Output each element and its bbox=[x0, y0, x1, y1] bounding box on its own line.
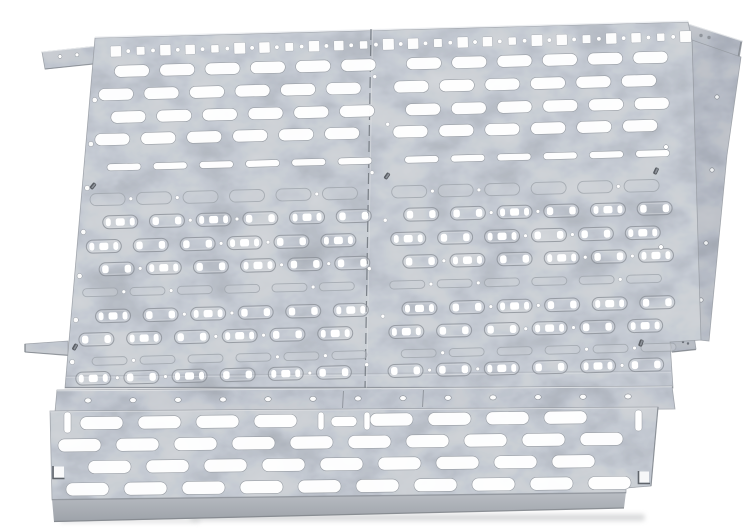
top-left-tab bbox=[42, 46, 100, 69]
open-slot bbox=[245, 159, 279, 167]
knockout-slot bbox=[146, 261, 181, 275]
square-hole bbox=[606, 33, 617, 44]
pilot-hole bbox=[524, 327, 528, 331]
rail-slot bbox=[66, 482, 109, 496]
rail-slot bbox=[530, 477, 573, 491]
pilot-hole bbox=[583, 255, 587, 259]
square-hole bbox=[657, 33, 665, 41]
rail-slot bbox=[138, 416, 181, 430]
open-slot bbox=[497, 101, 532, 114]
open-slot bbox=[439, 124, 474, 137]
flush-knockout bbox=[449, 348, 484, 357]
rail-slot bbox=[254, 414, 297, 428]
round-hole bbox=[498, 39, 502, 43]
pilot-hole bbox=[489, 305, 493, 309]
open-slot bbox=[141, 132, 176, 145]
round-hole bbox=[374, 42, 378, 46]
pilot-hole bbox=[315, 192, 319, 196]
rail-vertical-slot bbox=[364, 412, 370, 430]
edge-hole bbox=[664, 145, 669, 150]
flush-knockout bbox=[183, 191, 218, 204]
open-slot bbox=[95, 133, 130, 146]
knockout-slot bbox=[638, 249, 673, 263]
round-hole bbox=[365, 363, 369, 367]
square-hole bbox=[234, 42, 246, 54]
round-hole bbox=[349, 43, 353, 47]
open-slot bbox=[531, 122, 566, 135]
open-slot bbox=[160, 63, 195, 76]
rail-slot bbox=[356, 479, 399, 493]
rail-slot bbox=[290, 436, 333, 450]
open-slot bbox=[406, 57, 441, 70]
rail-slot bbox=[378, 457, 421, 471]
knockout-slot bbox=[222, 329, 257, 343]
square-hole bbox=[259, 42, 270, 53]
round-hole bbox=[423, 41, 427, 45]
flush-knockout bbox=[229, 189, 264, 202]
pilot-hole bbox=[431, 189, 435, 193]
flush-knockout bbox=[284, 352, 319, 361]
pilot-hole bbox=[620, 363, 624, 367]
open-slot bbox=[394, 80, 429, 93]
strip-hole bbox=[625, 394, 632, 399]
flush-knockout bbox=[225, 284, 260, 293]
rail-slot bbox=[348, 435, 391, 449]
open-slot bbox=[636, 150, 670, 158]
rail-slot bbox=[320, 457, 363, 471]
edge-hole bbox=[92, 97, 97, 102]
square-hole bbox=[185, 44, 195, 54]
rail-slot bbox=[240, 480, 283, 494]
pilot-hole bbox=[489, 211, 493, 215]
rail-slot bbox=[588, 476, 631, 490]
edge-hole bbox=[659, 245, 664, 250]
flush-knockout bbox=[579, 276, 614, 285]
pilot-hole bbox=[571, 233, 575, 237]
pilot-hole bbox=[327, 262, 331, 266]
round-hole bbox=[370, 171, 374, 175]
knockout-slot bbox=[172, 369, 207, 383]
rail-slot bbox=[544, 411, 587, 425]
flush-knockout bbox=[136, 192, 171, 205]
square-hole bbox=[382, 38, 394, 50]
flush-knockout bbox=[236, 353, 271, 362]
strip-hole bbox=[220, 397, 227, 402]
knockout-slot bbox=[497, 299, 532, 313]
rail-slot bbox=[146, 459, 189, 473]
open-slot bbox=[189, 86, 224, 99]
strip-hole bbox=[580, 394, 587, 399]
flange-hole bbox=[715, 95, 719, 99]
pilot-hole bbox=[442, 259, 446, 263]
rail-slot bbox=[196, 415, 239, 429]
knockout-slot bbox=[391, 232, 426, 246]
open-slot bbox=[497, 55, 532, 68]
open-slot bbox=[497, 153, 531, 161]
mounting-plate-image bbox=[0, 0, 750, 531]
edge-hole bbox=[70, 359, 75, 364]
pilot-hole bbox=[429, 282, 433, 286]
rail-slot bbox=[58, 439, 101, 453]
flush-knockout bbox=[392, 185, 427, 198]
pilot-hole bbox=[182, 312, 186, 316]
square-hole bbox=[308, 41, 319, 52]
open-slot bbox=[235, 84, 270, 97]
rail-slot bbox=[204, 459, 247, 473]
open-slot bbox=[576, 76, 611, 89]
pilot-hole bbox=[524, 234, 528, 238]
open-slot bbox=[326, 82, 361, 95]
flush-knockout bbox=[484, 278, 519, 287]
open-slot bbox=[294, 106, 329, 119]
rail-slot bbox=[88, 460, 131, 474]
round-hole bbox=[399, 42, 403, 46]
strip-hole bbox=[175, 397, 182, 402]
flush-knockout bbox=[322, 187, 357, 200]
open-slot bbox=[543, 152, 577, 160]
flush-knockout bbox=[92, 357, 127, 366]
flush-knockout bbox=[497, 347, 532, 356]
pilot-hole bbox=[164, 375, 168, 379]
strip-hole bbox=[355, 396, 362, 401]
pilot-hole bbox=[633, 346, 637, 350]
pilot-hole bbox=[129, 197, 133, 201]
rail-slot bbox=[232, 436, 275, 450]
round-hole bbox=[250, 46, 254, 50]
flush-knockout bbox=[545, 345, 580, 354]
round-hole bbox=[299, 44, 303, 48]
round-hole bbox=[621, 36, 625, 40]
knockout-slot bbox=[580, 359, 615, 373]
round-hole bbox=[381, 314, 385, 318]
square-hole bbox=[160, 44, 171, 55]
edge-hole bbox=[77, 273, 82, 278]
pilot-hole bbox=[441, 351, 445, 355]
round-hole bbox=[275, 45, 279, 49]
square-hole bbox=[631, 33, 641, 43]
flush-knockout bbox=[130, 287, 165, 296]
knockout-slot bbox=[126, 331, 161, 345]
open-slot bbox=[341, 59, 376, 72]
square-hole bbox=[359, 41, 367, 49]
round-hole bbox=[176, 48, 180, 52]
strip-hole bbox=[130, 398, 137, 403]
edge-hole bbox=[88, 141, 93, 146]
round-hole bbox=[367, 267, 371, 271]
flush-knockout bbox=[90, 193, 125, 206]
rail-slot bbox=[182, 481, 225, 495]
pilot-hole bbox=[308, 371, 312, 375]
round-hole bbox=[383, 218, 387, 222]
knockout-slot bbox=[450, 253, 485, 267]
round-hole bbox=[646, 35, 650, 39]
flush-knockout bbox=[276, 188, 311, 201]
pilot-hole bbox=[230, 311, 234, 315]
flush-knockout bbox=[531, 182, 566, 195]
round-hole bbox=[473, 40, 477, 44]
pilot-hole bbox=[115, 376, 119, 380]
pilot-hole bbox=[169, 289, 173, 293]
knockout-slot bbox=[544, 251, 579, 265]
rail-slot bbox=[472, 478, 515, 492]
open-slot bbox=[278, 128, 313, 141]
open-slot bbox=[187, 131, 222, 144]
rail-vertical-slot bbox=[635, 410, 642, 431]
round-hole bbox=[225, 46, 229, 50]
flush-knockout bbox=[624, 179, 659, 192]
open-slot bbox=[405, 155, 439, 163]
strip-hole bbox=[400, 396, 407, 401]
open-slot bbox=[634, 97, 669, 110]
rail-slot bbox=[80, 416, 123, 430]
square-hole bbox=[285, 43, 294, 52]
pilot-hole bbox=[132, 358, 136, 362]
pilot-hole bbox=[276, 355, 280, 359]
knockout-slot bbox=[318, 326, 353, 340]
knockout-slot bbox=[484, 361, 519, 375]
round-hole bbox=[126, 49, 130, 53]
rail-slot bbox=[298, 480, 341, 494]
strip-hole bbox=[310, 396, 317, 401]
rail-slot bbox=[428, 412, 471, 426]
strip-hole bbox=[265, 397, 272, 402]
round-hole bbox=[324, 44, 328, 48]
pilot-hole bbox=[476, 367, 480, 371]
open-slot bbox=[589, 151, 623, 159]
rail-vertical-slot bbox=[64, 412, 71, 433]
open-slot bbox=[250, 61, 285, 74]
open-slot bbox=[107, 163, 141, 171]
round-hole bbox=[671, 35, 675, 39]
pilot-hole bbox=[138, 266, 142, 270]
open-slot bbox=[485, 78, 520, 91]
knockout-slot bbox=[590, 203, 625, 217]
open-slot bbox=[295, 60, 330, 73]
round-hole bbox=[448, 40, 452, 44]
open-slot bbox=[543, 99, 578, 112]
rail-slot bbox=[124, 482, 167, 496]
rail-slot bbox=[116, 438, 159, 452]
pilot-hole bbox=[428, 368, 432, 372]
open-slot bbox=[530, 77, 565, 90]
knockout-slot bbox=[76, 371, 111, 385]
knockout-slot bbox=[321, 233, 356, 247]
product-photo: Galvanized steel perforated mounting pla… bbox=[0, 0, 750, 531]
open-slot bbox=[156, 109, 191, 122]
knockout-slot bbox=[497, 205, 532, 219]
square-hole bbox=[434, 39, 443, 48]
rail-slot bbox=[580, 432, 623, 446]
rail-vertical-slot bbox=[318, 412, 324, 430]
rail-slot bbox=[414, 478, 457, 492]
knockout-slot bbox=[532, 321, 567, 335]
open-slot bbox=[114, 65, 149, 78]
square-hole bbox=[457, 37, 468, 48]
open-slot bbox=[621, 74, 656, 87]
flush-knockout bbox=[626, 274, 661, 283]
open-slot bbox=[452, 56, 487, 69]
pilot-hole bbox=[630, 254, 634, 258]
square-hole bbox=[582, 35, 591, 44]
round-hole bbox=[572, 37, 576, 41]
round-hole bbox=[200, 47, 204, 51]
open-slot bbox=[233, 129, 268, 142]
flush-knockout bbox=[437, 279, 472, 288]
pilot-hole bbox=[477, 188, 481, 192]
rail-slot bbox=[522, 433, 565, 447]
flush-knockout bbox=[188, 354, 223, 363]
open-slot bbox=[633, 51, 668, 64]
flush-knockout bbox=[577, 181, 612, 194]
left-side-tab bbox=[25, 341, 68, 356]
edge-hole bbox=[85, 185, 90, 190]
open-slot bbox=[451, 102, 486, 115]
knockout-slot bbox=[86, 239, 121, 253]
flush-knockout bbox=[332, 351, 367, 360]
open-slot bbox=[622, 119, 657, 132]
open-slot bbox=[576, 121, 611, 134]
square-hole bbox=[482, 37, 492, 47]
knockout-slot bbox=[103, 215, 138, 229]
knockout-slot bbox=[333, 303, 368, 317]
square-hole bbox=[508, 37, 516, 45]
open-slot bbox=[292, 158, 326, 166]
pilot-hole bbox=[266, 240, 270, 244]
open-slot bbox=[144, 87, 179, 100]
flush-knockout bbox=[593, 344, 628, 353]
open-slot bbox=[280, 83, 315, 96]
open-slot bbox=[439, 79, 474, 92]
rail-slot bbox=[486, 411, 529, 425]
knockout-slot bbox=[484, 229, 519, 243]
flush-knockout bbox=[390, 280, 425, 289]
open-slot bbox=[485, 123, 520, 136]
strip-hole bbox=[85, 398, 92, 403]
knockout-slot bbox=[196, 213, 231, 227]
strip-hole bbox=[535, 395, 542, 400]
pilot-hole bbox=[280, 263, 284, 267]
pilot-hole bbox=[324, 354, 328, 358]
pilot-hole bbox=[188, 218, 192, 222]
pilot-hole bbox=[585, 347, 589, 351]
pilot-hole bbox=[214, 334, 218, 338]
flush-knockout bbox=[140, 355, 175, 364]
flange-hole bbox=[704, 241, 708, 245]
square-hole bbox=[680, 31, 692, 43]
pilot-hole bbox=[262, 333, 266, 337]
pilot-hole bbox=[219, 241, 223, 245]
pilot-hole bbox=[122, 290, 126, 294]
open-slot bbox=[202, 108, 237, 121]
pilot-hole bbox=[175, 196, 179, 200]
square-hole bbox=[531, 35, 543, 47]
flush-knockout bbox=[438, 184, 473, 197]
edge-hole bbox=[81, 229, 86, 234]
rail-slot bbox=[494, 455, 537, 469]
round-hole bbox=[373, 75, 377, 79]
round-hole bbox=[386, 122, 390, 126]
pilot-hole bbox=[311, 285, 315, 289]
round-hole bbox=[547, 38, 551, 42]
flush-knockout bbox=[83, 288, 118, 297]
open-slot bbox=[587, 52, 622, 65]
rail-slot bbox=[406, 434, 449, 448]
flange-hole bbox=[710, 168, 714, 172]
knockout-slot bbox=[95, 309, 130, 323]
pilot-hole bbox=[536, 304, 540, 308]
rail-slot bbox=[436, 456, 479, 470]
round-hole bbox=[151, 48, 155, 52]
knockout-slot bbox=[592, 297, 627, 311]
open-slot bbox=[248, 107, 283, 120]
knockout-slot bbox=[389, 325, 424, 339]
round-hole bbox=[597, 37, 601, 41]
pilot-hole bbox=[572, 326, 576, 330]
knockout-slot bbox=[289, 210, 324, 224]
flush-knockout bbox=[401, 349, 436, 358]
rail-slot bbox=[370, 413, 413, 427]
pilot-hole bbox=[476, 281, 480, 285]
square-hole bbox=[110, 46, 121, 57]
pilot-hole bbox=[618, 277, 622, 281]
open-slot bbox=[338, 157, 372, 165]
knockout-slot bbox=[627, 319, 662, 333]
open-slot bbox=[339, 105, 374, 118]
square-hole bbox=[211, 45, 219, 53]
square-hole bbox=[334, 40, 344, 50]
knockout-slot bbox=[625, 226, 660, 240]
rail-slot bbox=[331, 416, 357, 426]
strip-hole bbox=[445, 395, 452, 400]
open-slot bbox=[451, 154, 485, 162]
square-hole bbox=[556, 34, 567, 45]
bottom-rail bbox=[50, 407, 658, 522]
pilot-hole bbox=[616, 184, 620, 188]
edge-hole bbox=[73, 317, 78, 322]
flush-knockout bbox=[641, 343, 676, 352]
rail-slot bbox=[552, 455, 595, 469]
strip-hole bbox=[490, 395, 497, 400]
square-hole bbox=[407, 38, 418, 49]
open-slot bbox=[199, 161, 233, 169]
pilot-hole bbox=[235, 217, 239, 221]
open-slot bbox=[153, 162, 187, 170]
rail-slot bbox=[174, 437, 217, 451]
open-slot bbox=[542, 53, 577, 66]
open-slot bbox=[111, 111, 146, 124]
open-slot bbox=[205, 62, 240, 75]
knockout-slot bbox=[240, 258, 275, 272]
flush-knockout bbox=[177, 286, 212, 295]
open-slot bbox=[98, 88, 133, 101]
open-slot bbox=[324, 127, 359, 140]
open-slot bbox=[588, 98, 623, 111]
round-hole bbox=[522, 39, 526, 43]
flush-knockout bbox=[319, 282, 354, 291]
flush-knockout bbox=[532, 277, 567, 286]
open-slot bbox=[405, 103, 440, 116]
knockout-slot bbox=[402, 301, 437, 315]
flush-knockout bbox=[485, 183, 520, 196]
knockout-slot bbox=[268, 367, 303, 381]
flush-knockout bbox=[272, 283, 307, 292]
knockout-slot bbox=[227, 236, 262, 250]
open-slot bbox=[393, 125, 428, 138]
rail-slot bbox=[464, 434, 507, 448]
square-hole bbox=[136, 46, 145, 55]
rail-slot bbox=[262, 458, 305, 472]
knockout-slot bbox=[190, 307, 225, 321]
